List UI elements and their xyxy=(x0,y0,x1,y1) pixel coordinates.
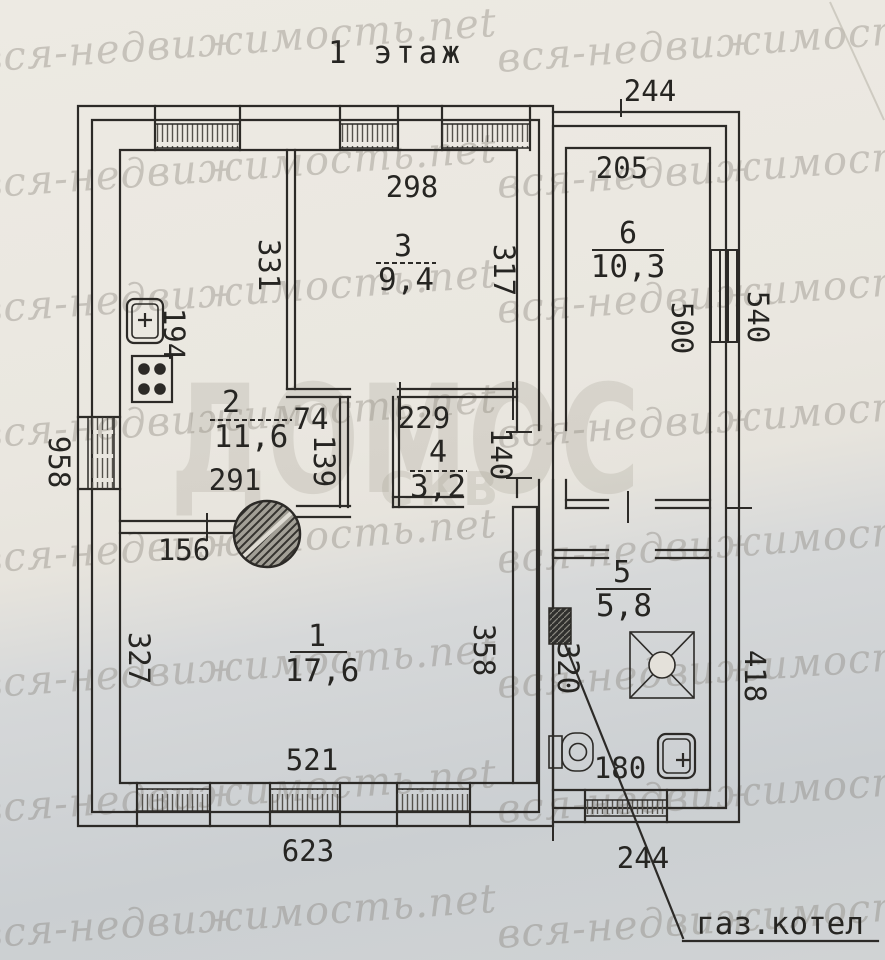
dim-317: 317 xyxy=(487,244,521,296)
dim-291: 291 xyxy=(209,463,261,497)
room-number: 5 xyxy=(613,555,631,590)
room-area: 3,2 xyxy=(410,469,466,505)
room-area: 10,3 xyxy=(591,249,666,285)
room-number: 4 xyxy=(429,435,447,470)
room-area: 9,4 xyxy=(378,262,434,298)
round-stove-icon xyxy=(234,501,300,567)
room-area: 11,6 xyxy=(214,419,289,455)
room-number: 1 xyxy=(308,619,326,654)
dim-623: 623 xyxy=(282,834,334,868)
dim-180: 180 xyxy=(594,751,646,785)
window xyxy=(88,417,114,489)
dim-327: 327 xyxy=(122,632,156,684)
dim-521: 521 xyxy=(286,743,338,777)
dim-229: 229 xyxy=(398,401,450,435)
room-label-1: 1 17,6 xyxy=(285,619,360,689)
toilet-icon xyxy=(549,733,593,771)
scanned-floor-plan-photo: вся-недвижимость.net вся-недвижимость.ne… xyxy=(0,0,885,960)
dim-194: 194 xyxy=(157,308,191,360)
floor-plan-drawing: вся-недвижимость.net вся-недвижимость.ne… xyxy=(0,0,885,960)
room-label-3: 3 9,4 xyxy=(376,229,436,298)
room-number: 6 xyxy=(619,216,637,251)
page-title: 1 этаж xyxy=(328,35,464,71)
dim-74: 74 xyxy=(294,402,329,436)
window xyxy=(270,789,340,811)
window xyxy=(585,800,667,816)
window xyxy=(340,124,398,148)
gas-boiler-label: газ.котел xyxy=(696,906,864,942)
room-number: 3 xyxy=(394,229,412,264)
washbasin-icon xyxy=(658,734,695,778)
dim-500: 500 xyxy=(665,302,699,354)
dim-540: 540 xyxy=(741,291,775,343)
dim-331: 331 xyxy=(252,239,286,291)
room-number: 2 xyxy=(222,385,240,420)
room-area: 17,6 xyxy=(285,653,360,689)
dim-320: 320 xyxy=(551,642,585,694)
room-label-6: 6 10,3 xyxy=(591,216,666,285)
window xyxy=(397,789,470,811)
watermark-text: вся-недвижимость.net xyxy=(495,0,885,82)
dim-298: 298 xyxy=(386,170,438,204)
watermark-text: вся-недвижимость.net xyxy=(0,626,498,708)
dim-958: 958 xyxy=(42,436,76,488)
dim-156: 156 xyxy=(158,533,210,567)
watermark-text: вся-недвижимость.net xyxy=(0,876,498,958)
room-area: 5,8 xyxy=(596,588,652,624)
window xyxy=(137,789,210,811)
dim-205: 205 xyxy=(596,151,648,185)
dim-244-top: 244 xyxy=(624,74,676,108)
cooker-icon xyxy=(132,356,172,402)
gas-boiler-icon xyxy=(549,608,571,644)
dim-358: 358 xyxy=(467,624,501,676)
window xyxy=(155,124,240,148)
window xyxy=(442,124,530,148)
dim-139: 139 xyxy=(307,435,341,487)
dim-244-bottom: 244 xyxy=(617,841,669,875)
dim-140: 140 xyxy=(484,428,518,480)
dim-418: 418 xyxy=(738,650,772,702)
